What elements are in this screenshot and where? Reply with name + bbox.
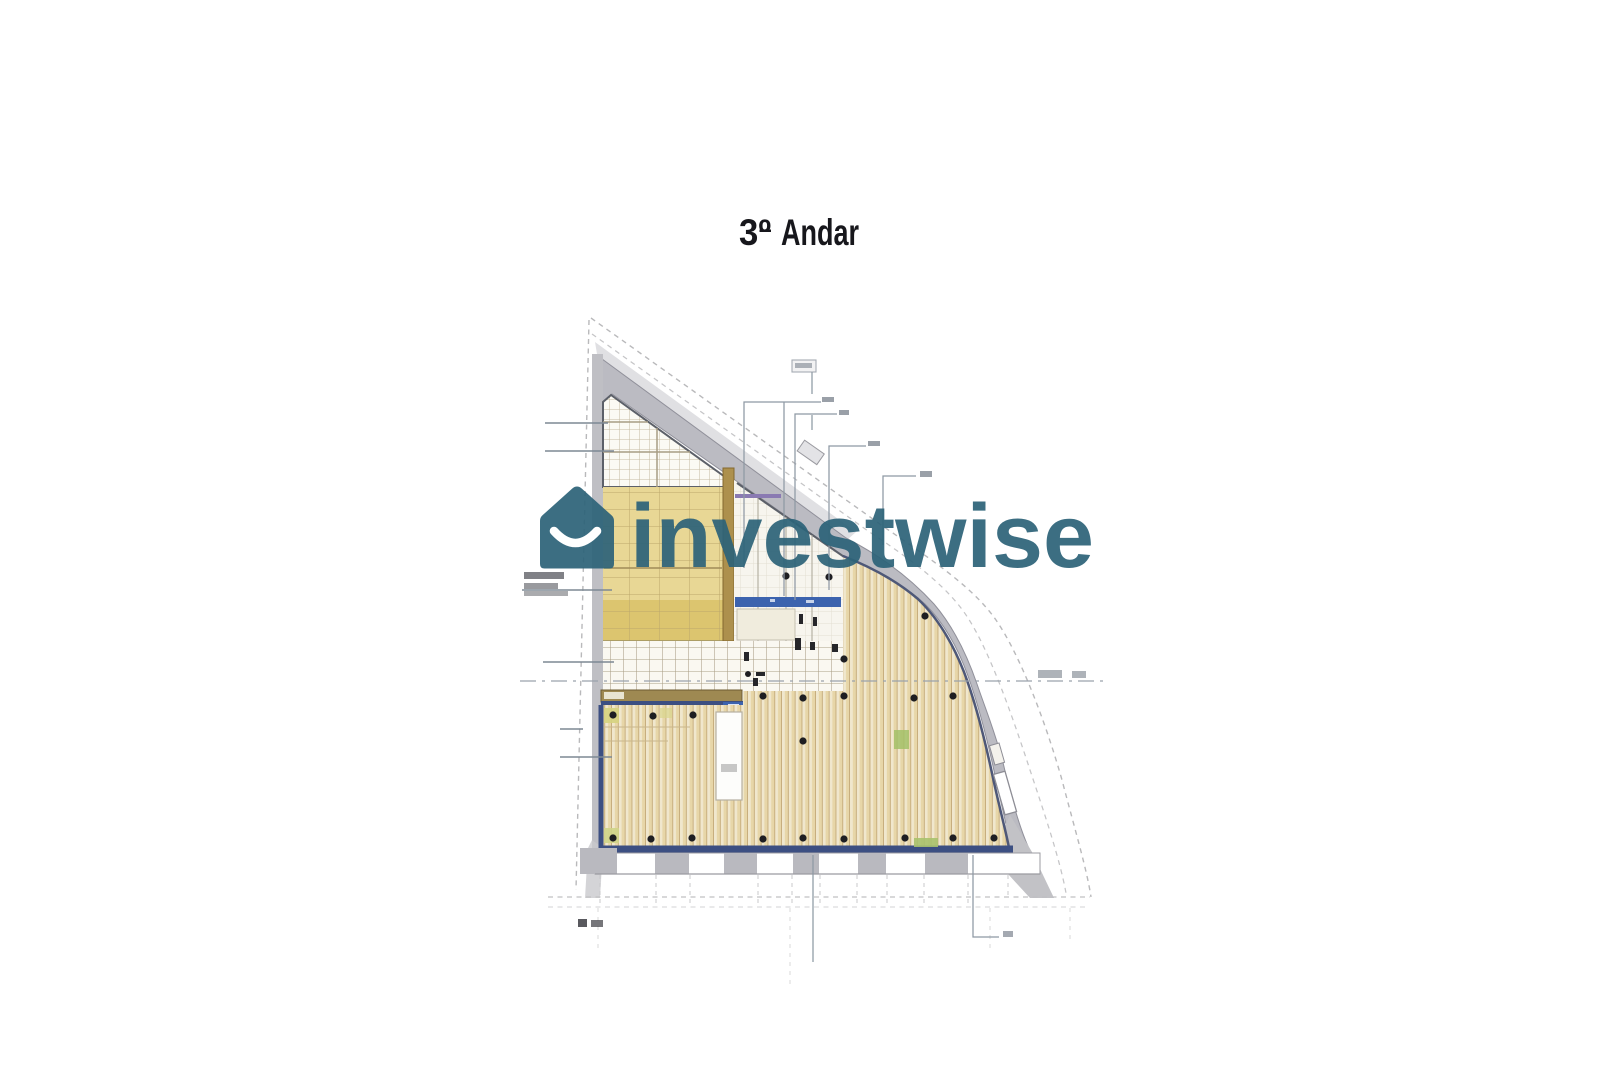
svg-text:investwise: investwise (630, 487, 1094, 587)
svg-text:Andar: Andar (781, 212, 859, 253)
svg-text:3º: 3º (739, 212, 771, 253)
